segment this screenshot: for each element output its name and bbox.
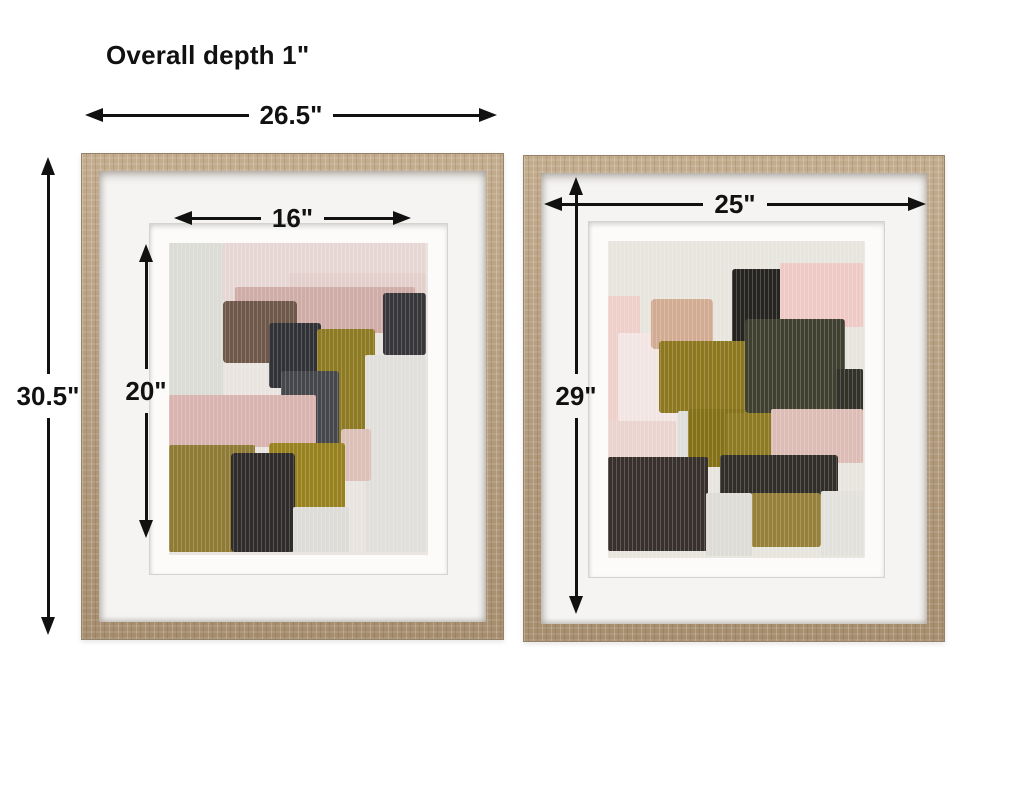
left-abstract-artwork xyxy=(169,243,428,555)
paint-patch xyxy=(365,355,426,552)
dimension-line xyxy=(47,175,50,374)
dimension-label: 25" xyxy=(703,191,766,217)
paint-patch xyxy=(706,493,752,556)
dimension-label: 20" xyxy=(125,369,166,413)
paint-patch xyxy=(169,395,316,447)
paint-patch xyxy=(383,293,426,355)
dimension-line xyxy=(192,217,261,220)
arrowhead-down-icon xyxy=(569,596,583,614)
dimension-overall-height: 30.5" xyxy=(10,157,86,635)
right-picture-frame: 25" 29" xyxy=(523,155,945,642)
dimension-line xyxy=(145,262,148,369)
left-mat-opening xyxy=(149,223,448,575)
dimension-label: 26.5" xyxy=(249,102,334,128)
paint-patch xyxy=(341,429,371,481)
dimension-left-art-height: 20" xyxy=(118,244,174,538)
dimension-label: 29" xyxy=(555,374,596,418)
right-mat-opening xyxy=(588,221,885,578)
left-picture-frame: 16" 20" xyxy=(81,153,504,640)
product-dimension-diagram: Overall depth 1" 26.5" 30.5" 16" 2 xyxy=(0,0,1024,789)
dimension-line xyxy=(767,203,908,206)
arrowhead-left-icon xyxy=(174,211,192,225)
arrowhead-right-icon xyxy=(393,211,411,225)
dimension-left-art-width: 16" xyxy=(174,203,411,233)
paint-patch xyxy=(231,453,295,552)
paint-patch xyxy=(608,457,708,551)
paint-patch xyxy=(169,243,223,411)
arrowhead-left-icon xyxy=(85,108,103,122)
dimension-line xyxy=(575,418,578,597)
arrowhead-right-icon xyxy=(908,197,926,211)
paint-patch xyxy=(720,455,838,497)
arrowhead-up-icon xyxy=(41,157,55,175)
overall-depth-label: Overall depth 1" xyxy=(106,40,309,71)
right-abstract-artwork xyxy=(608,241,865,558)
paint-patch xyxy=(821,491,863,556)
arrowhead-up-icon xyxy=(139,244,153,262)
dimension-overall-width: 26.5" xyxy=(85,100,497,130)
dimension-line xyxy=(47,418,50,617)
dimension-line xyxy=(333,114,479,117)
paint-patch xyxy=(293,507,349,552)
paint-patch xyxy=(745,319,845,413)
dimension-label: 16" xyxy=(261,205,324,231)
paint-patch xyxy=(751,493,821,547)
arrowhead-down-icon xyxy=(41,617,55,635)
paint-patch xyxy=(726,413,774,457)
dimension-line xyxy=(575,195,578,374)
arrowhead-down-icon xyxy=(139,520,153,538)
dimension-label: 30.5" xyxy=(17,374,80,418)
dimension-line xyxy=(145,413,148,520)
arrowhead-right-icon xyxy=(479,108,497,122)
dimension-line xyxy=(324,217,393,220)
paint-patch xyxy=(659,341,747,413)
arrowhead-up-icon xyxy=(569,177,583,195)
dimension-right-height: 29" xyxy=(548,177,604,614)
dimension-line xyxy=(103,114,249,117)
paint-patch xyxy=(780,263,863,327)
